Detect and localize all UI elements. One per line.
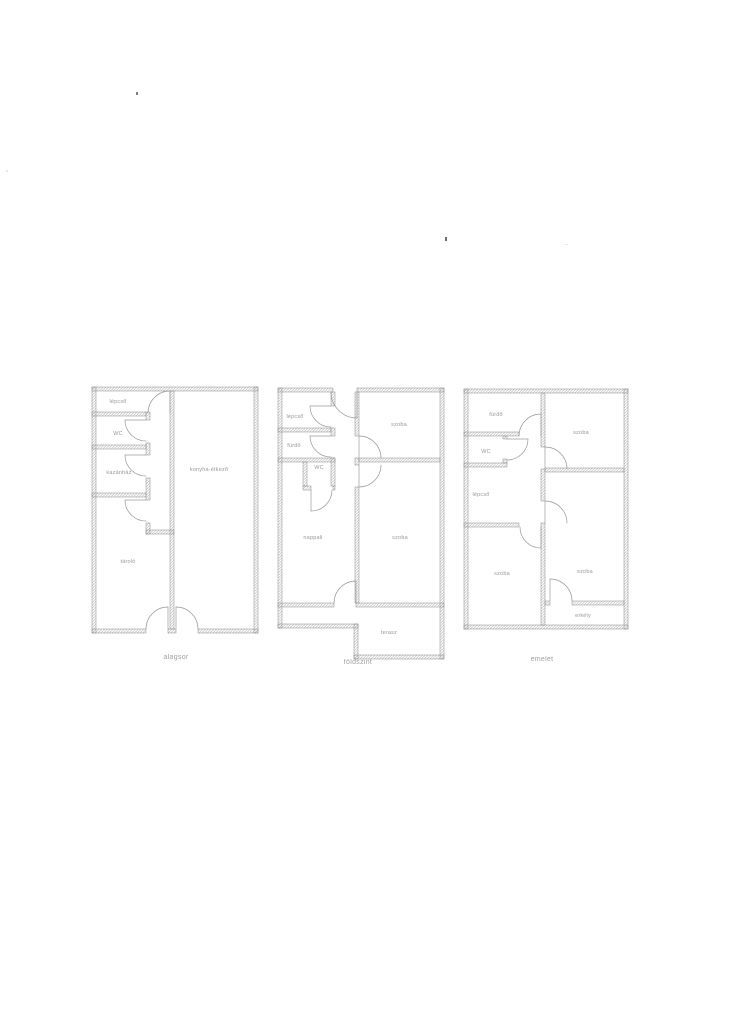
floor-label-alagsor: alagsor [146, 654, 206, 661]
room-label-lepcso: lépcső [109, 399, 126, 405]
room-labels: fürdő WC lépcső szoba szoba szoba erkély [472, 412, 593, 619]
scan-speck [136, 92, 138, 95]
room-labels: lépcső WC kazánház tároló konyha-étkező [106, 399, 228, 565]
doors [310, 392, 381, 603]
room-label-wc: WC [314, 465, 324, 471]
room-label-szoba-felso: szoba [391, 422, 407, 428]
floor-plan-emelet: fürdő WC lépcső szoba szoba szoba erkély [464, 389, 628, 629]
room-label-szoba-also: szoba [392, 535, 408, 541]
room-label-nappali: nappali [303, 535, 322, 541]
room-label-furdo: fürdő [489, 412, 503, 418]
room-label-konyha-etkezo: konyha-étkező [190, 467, 228, 473]
room-label-lepcso: lépcső [472, 492, 489, 498]
room-label-lepcso: lépcső [286, 414, 303, 420]
floor-plan-foldszint: lépcső fürdő WC nappali szoba szoba tera… [278, 388, 444, 659]
room-label-terasz: terasz [381, 630, 397, 636]
walls [92, 387, 258, 633]
walls [464, 389, 628, 629]
room-label-furdo: fürdő [287, 443, 301, 449]
floor-label-foldszint: földszint [328, 659, 388, 666]
doors [125, 391, 198, 629]
room-label-szoba-balalso: szoba [494, 571, 510, 577]
room-label-erkely: erkély [575, 613, 591, 619]
scan-speck [6, 170, 8, 172]
room-label-kazanhaz: kazánház [106, 470, 131, 476]
scan-speck [565, 244, 568, 245]
scan-speck [445, 237, 447, 241]
walls [278, 388, 444, 659]
room-label-wc: WC [113, 431, 123, 437]
doors [507, 414, 572, 601]
room-label-szoba-felso: szoba [573, 430, 589, 436]
room-label-wc: WC [481, 449, 491, 455]
floor-label-emelet: emelet [512, 656, 572, 663]
room-label-tarolo: tároló [121, 559, 136, 565]
room-label-szoba-jobbalso: szoba [577, 569, 593, 575]
scanned-page: lépcső WC kazánház tároló konyha-étkező [0, 0, 739, 1024]
room-labels: lépcső fürdő WC nappali szoba szoba tera… [286, 414, 408, 636]
floor-plan-alagsor: lépcső WC kazánház tároló konyha-étkező [92, 387, 258, 633]
